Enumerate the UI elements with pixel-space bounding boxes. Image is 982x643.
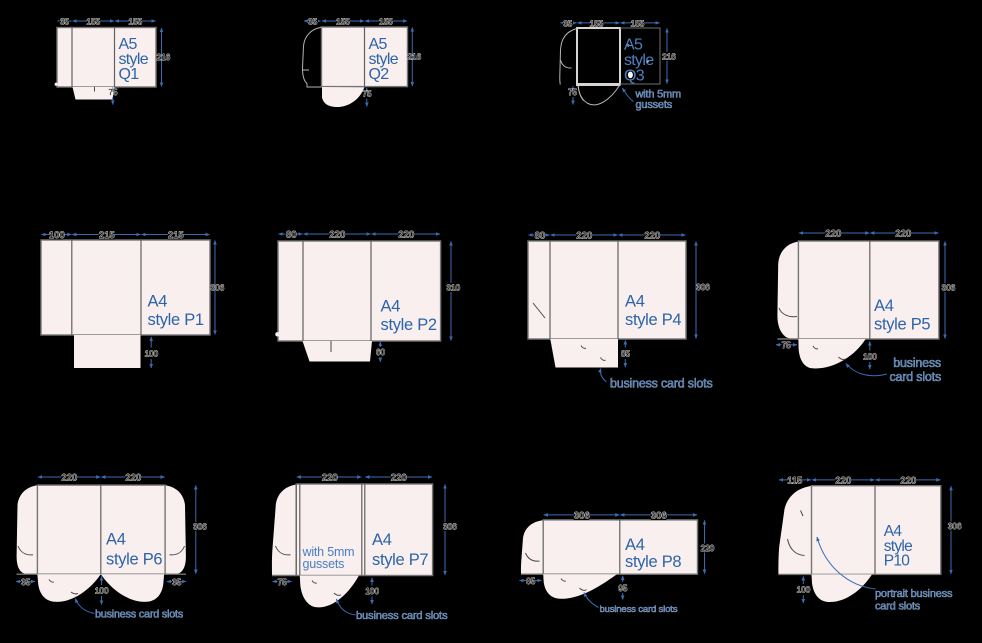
- svg-text:card slots: card slots: [875, 601, 921, 613]
- svg-text:220: 220: [577, 231, 593, 241]
- svg-text:220: 220: [826, 229, 842, 239]
- svg-text:style P1: style P1: [148, 311, 204, 329]
- svg-text:155: 155: [379, 18, 393, 27]
- svg-text:75: 75: [782, 341, 792, 350]
- svg-text:style: style: [624, 52, 654, 69]
- svg-text:A4: A4: [625, 536, 645, 554]
- svg-text:business: business: [893, 356, 941, 370]
- svg-text:75: 75: [362, 90, 372, 99]
- svg-text:220: 220: [896, 229, 912, 239]
- svg-text:100: 100: [797, 586, 811, 595]
- svg-text:155: 155: [631, 19, 645, 28]
- svg-text:85: 85: [621, 350, 631, 359]
- svg-text:306: 306: [942, 284, 956, 293]
- svg-text:A4: A4: [148, 293, 168, 311]
- svg-text:215: 215: [168, 230, 184, 240]
- svg-text:35: 35: [563, 19, 573, 28]
- svg-text:business card slots: business card slots: [95, 609, 184, 621]
- svg-text:35: 35: [308, 18, 318, 27]
- svg-text:style P7: style P7: [372, 551, 428, 569]
- svg-text:style P2: style P2: [381, 316, 437, 334]
- svg-text:A4: A4: [106, 531, 126, 549]
- svg-text:155: 155: [128, 18, 142, 27]
- svg-text:216: 216: [157, 53, 171, 62]
- svg-text:306: 306: [211, 284, 225, 293]
- svg-text:85: 85: [526, 577, 536, 586]
- svg-text:35: 35: [21, 578, 31, 587]
- svg-text:style P5: style P5: [874, 316, 930, 334]
- svg-text:business card slots: business card slots: [600, 604, 678, 615]
- svg-text:P10: P10: [884, 553, 911, 570]
- svg-text:portrait business: portrait business: [875, 588, 953, 600]
- svg-text:75: 75: [568, 88, 578, 97]
- svg-text:A4: A4: [372, 531, 392, 549]
- svg-text:100: 100: [145, 350, 159, 359]
- svg-text:business card slots: business card slots: [610, 377, 713, 391]
- svg-text:A4: A4: [381, 298, 401, 316]
- svg-text:75: 75: [108, 88, 118, 97]
- svg-text:306: 306: [651, 510, 667, 520]
- svg-text:Q2: Q2: [369, 66, 390, 83]
- svg-text:Q3: Q3: [624, 68, 645, 85]
- svg-text:gussets: gussets: [303, 557, 345, 571]
- svg-text:35: 35: [172, 578, 182, 587]
- svg-text:155: 155: [336, 18, 350, 27]
- svg-text:310: 310: [446, 284, 460, 293]
- svg-text:306: 306: [193, 523, 207, 532]
- svg-text:155: 155: [86, 18, 100, 27]
- svg-text:100: 100: [365, 587, 379, 596]
- svg-text:220: 220: [126, 473, 142, 483]
- svg-text:220: 220: [330, 230, 346, 240]
- svg-text:80: 80: [535, 231, 546, 241]
- svg-text:220: 220: [901, 475, 917, 485]
- svg-text:220: 220: [399, 230, 415, 240]
- svg-text:220: 220: [836, 475, 852, 485]
- svg-text:95: 95: [618, 584, 628, 593]
- svg-text:Q1: Q1: [119, 66, 140, 83]
- svg-text:115: 115: [787, 475, 802, 485]
- svg-text:220: 220: [62, 473, 78, 483]
- svg-text:216: 216: [662, 53, 676, 62]
- svg-text:220: 220: [701, 544, 715, 553]
- svg-text:A4: A4: [625, 293, 645, 311]
- svg-text:215: 215: [99, 230, 115, 240]
- svg-text:220: 220: [322, 473, 338, 483]
- svg-text:220: 220: [645, 231, 661, 241]
- svg-text:216: 216: [407, 53, 421, 62]
- svg-text:A5: A5: [624, 37, 643, 54]
- svg-text:306: 306: [574, 510, 590, 520]
- svg-text:220: 220: [391, 473, 407, 483]
- svg-text:card slots: card slots: [890, 370, 942, 384]
- svg-text:100: 100: [95, 587, 109, 596]
- svg-text:306: 306: [443, 523, 457, 532]
- svg-text:100: 100: [49, 230, 65, 240]
- svg-text:style P6: style P6: [106, 551, 162, 569]
- svg-text:gussets: gussets: [636, 99, 673, 111]
- svg-text:60: 60: [376, 348, 386, 357]
- svg-text:80: 80: [286, 230, 297, 240]
- svg-text:style P4: style P4: [625, 311, 681, 329]
- svg-text:75: 75: [278, 578, 288, 587]
- svg-text:style P8: style P8: [625, 553, 681, 571]
- svg-text:100: 100: [863, 353, 877, 362]
- svg-text:306: 306: [696, 283, 710, 292]
- svg-text:35: 35: [60, 18, 70, 27]
- svg-text:306: 306: [948, 522, 962, 531]
- svg-text:A4: A4: [874, 297, 894, 315]
- svg-text:business card slots: business card slots: [356, 610, 448, 622]
- svg-text:155: 155: [590, 19, 604, 28]
